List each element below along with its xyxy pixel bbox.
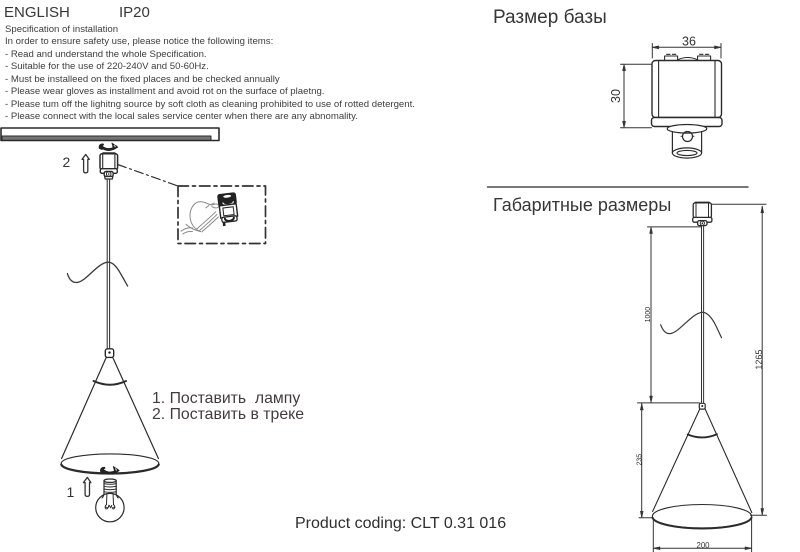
svg-text:36: 36 xyxy=(682,35,696,49)
svg-text:235: 235 xyxy=(636,454,643,466)
svg-text:1000: 1000 xyxy=(645,307,652,323)
svg-text:200: 200 xyxy=(696,541,710,550)
svg-text:30: 30 xyxy=(609,89,623,103)
svg-text:1265: 1265 xyxy=(754,350,764,370)
